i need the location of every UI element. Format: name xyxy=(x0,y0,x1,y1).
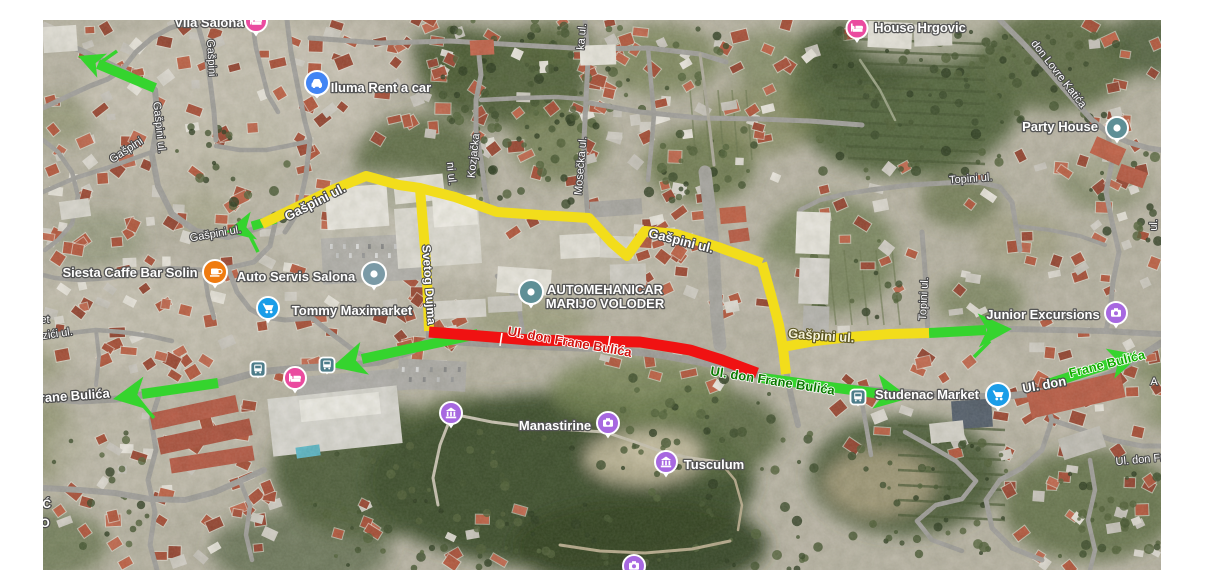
svg-text:Manastirine: Manastirine xyxy=(519,418,591,433)
svg-text:Gašpini: Gašpini xyxy=(204,39,218,77)
svg-text:Studenac Market: Studenac Market xyxy=(875,387,980,402)
svg-text:ul.: ul. xyxy=(1148,219,1160,231)
svg-text:Iluma Rent a car: Iluma Rent a car xyxy=(331,80,431,95)
svg-text:MARIJO VOLODER: MARIJO VOLODER xyxy=(546,296,665,311)
svg-text:House Hrgovic: House Hrgovic xyxy=(874,20,966,35)
svg-text:Topini ul.: Topini ul. xyxy=(917,277,931,321)
svg-text:AUTOMEHANICAR: AUTOMEHANICAR xyxy=(547,282,664,297)
svg-text:A: A xyxy=(1150,376,1158,388)
svg-text:ka ul.: ka ul. xyxy=(575,23,589,50)
svg-text:Party House: Party House xyxy=(1022,119,1098,134)
svg-text:Siesta Caffe Bar Solin: Siesta Caffe Bar Solin xyxy=(62,265,197,280)
svg-text:Auto Servis Salona: Auto Servis Salona xyxy=(237,269,356,284)
svg-text:Tusculum: Tusculum xyxy=(684,457,744,472)
svg-text:Junior Excursions: Junior Excursions xyxy=(986,307,1099,322)
svg-text:Tommy Maximarket: Tommy Maximarket xyxy=(292,303,413,318)
svg-text:ni ul.: ni ul. xyxy=(444,162,458,186)
